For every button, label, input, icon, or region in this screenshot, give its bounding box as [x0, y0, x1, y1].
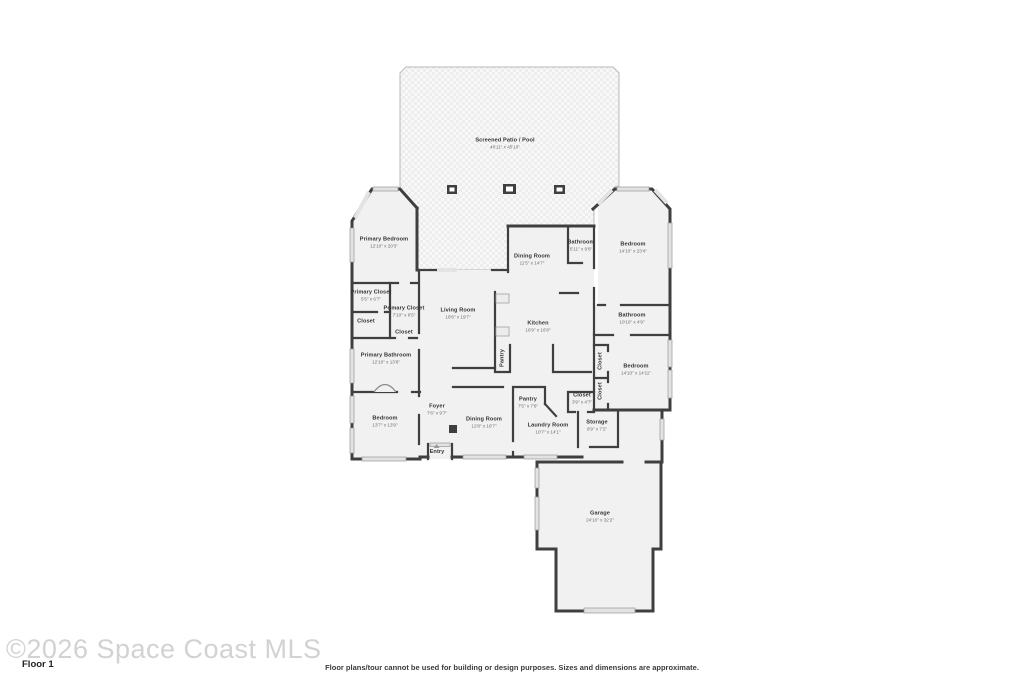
garage-door: [584, 608, 635, 613]
foyer-column: [449, 425, 457, 433]
floorplan-page: Screened Patio / Pool46'11" x 45'10"Prim…: [0, 0, 1024, 683]
room-fills: [351, 188, 670, 612]
disclaimer-text: Floor plans/tour cannot be used for buil…: [0, 663, 1024, 672]
entry-door: [430, 443, 450, 447]
floorplan-drawing: [0, 0, 1024, 683]
